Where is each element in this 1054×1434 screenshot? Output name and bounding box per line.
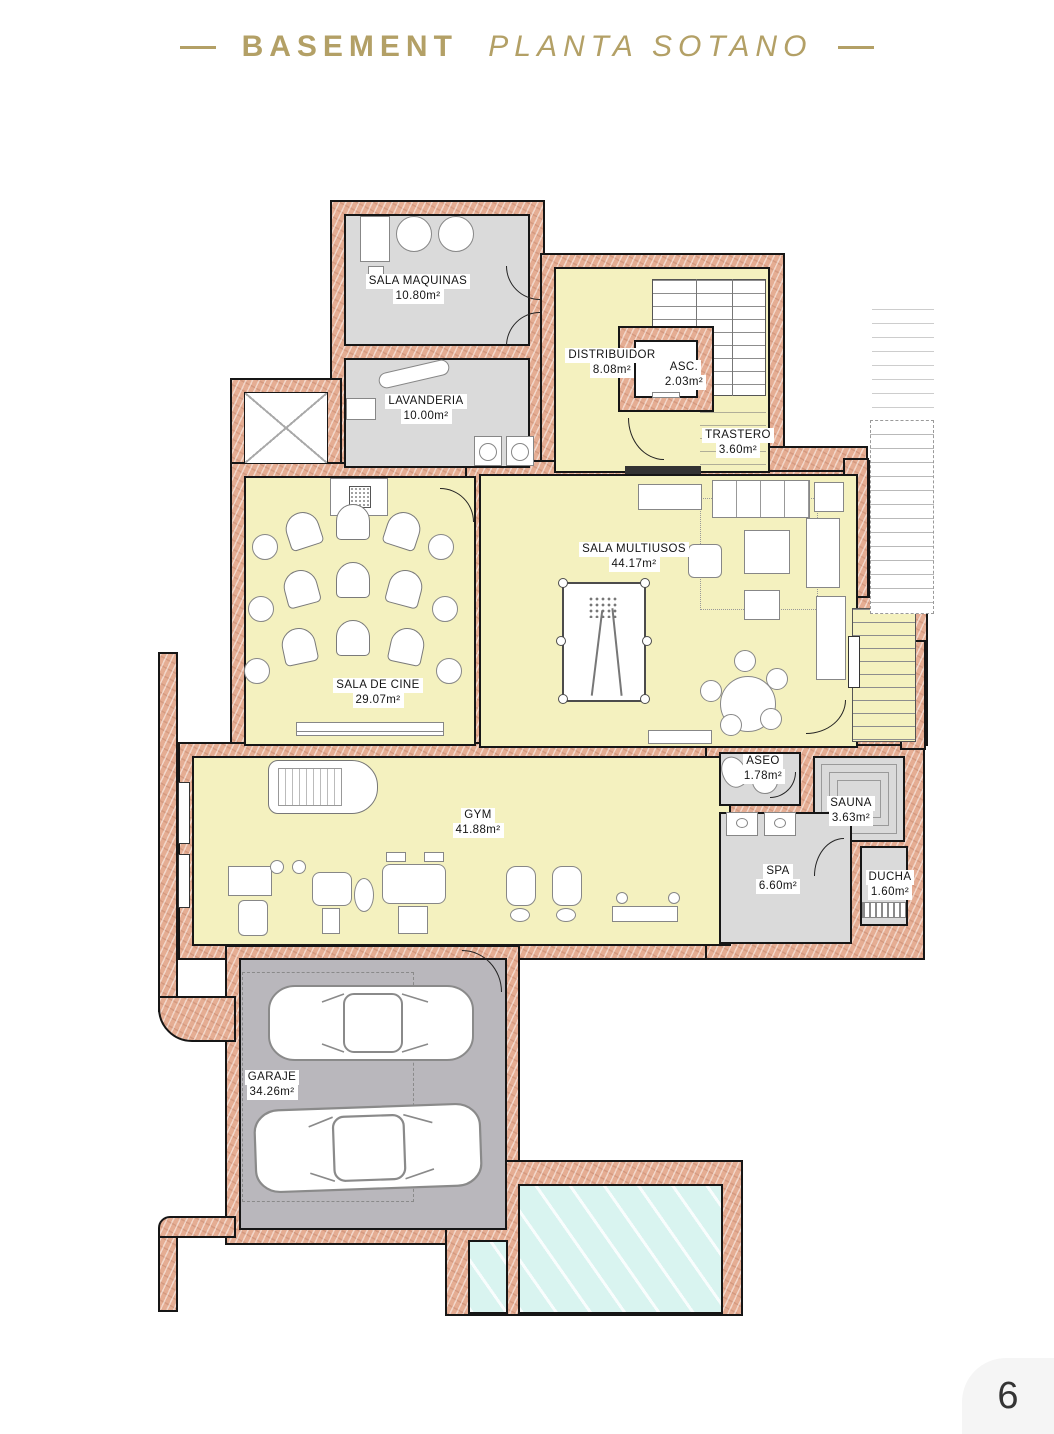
wall-segment	[158, 1216, 236, 1238]
machine-unit	[360, 216, 390, 262]
exterior-staircase-upper	[872, 296, 934, 418]
side-table	[428, 534, 454, 560]
gym-machine-weight	[292, 860, 306, 874]
sideboard	[638, 484, 702, 510]
label-sala-multiusos: SALA MULTIUSOS44.17m²	[564, 542, 704, 572]
coffee-table	[744, 530, 790, 574]
pool-table-pocket	[642, 636, 652, 646]
tall-cabinet	[816, 596, 846, 680]
retaining-wall-curve	[158, 996, 236, 1042]
exercise-bike	[506, 866, 536, 906]
gym-punching-bag	[354, 878, 374, 912]
label-lavanderia: LAVANDERIA10.00m²	[356, 394, 496, 424]
dining-chair	[700, 680, 722, 702]
side-table	[248, 596, 274, 622]
window	[848, 636, 860, 688]
stair-divider	[732, 279, 733, 396]
pool-strip	[468, 1240, 508, 1314]
label-ducha: DUCHA1.60m²	[820, 870, 960, 900]
cinema-seat	[336, 562, 370, 598]
side-table	[252, 534, 278, 560]
side-table	[432, 596, 458, 622]
car-top-view	[250, 1096, 485, 1200]
label-sauna: SAUNA3.63m²	[781, 796, 921, 826]
label-ascensor: ASC.2.03m²	[636, 360, 732, 390]
exercise-bike	[552, 866, 582, 906]
car-top-view	[266, 980, 476, 1066]
gym-dumbbell	[668, 892, 680, 904]
pool-table-pocket	[640, 578, 650, 588]
washing-machine-drum	[511, 443, 529, 461]
gym-machine	[228, 866, 272, 896]
dining-chair	[760, 708, 782, 730]
water-tank	[396, 216, 432, 252]
pool-table-pocket	[558, 694, 568, 704]
window	[178, 782, 190, 844]
elevator-door	[652, 392, 680, 398]
gym-handle	[386, 852, 406, 862]
pool-table-pocket	[558, 578, 568, 588]
bench	[648, 730, 712, 744]
wall-segment	[158, 1236, 178, 1312]
pool-table-pocket	[556, 636, 566, 646]
label-sala-maquinas: SALA MAQUINAS10.80m²	[348, 274, 488, 304]
wall-shelf	[625, 466, 701, 474]
retaining-wall	[158, 652, 178, 1012]
spa-sink-bowl	[736, 818, 748, 828]
sofa	[806, 518, 840, 588]
dining-chair	[720, 714, 742, 736]
dining-chair	[766, 668, 788, 690]
window	[178, 854, 190, 908]
shower-drain	[862, 902, 906, 918]
gym-handle	[424, 852, 444, 862]
brochure-page: BASEMENT PLANTA SOTANO	[0, 0, 1054, 1434]
cinema-seat	[336, 620, 370, 656]
gym-machine	[238, 900, 268, 936]
pouf	[744, 590, 780, 620]
washing-machine-drum	[479, 443, 497, 461]
label-sala-de-cine: SALA DE CINE29.07m²	[308, 678, 448, 708]
gym-bench-press	[312, 872, 352, 906]
label-garaje: GARAJE34.26m²	[202, 1070, 342, 1100]
floor-plan: SALA MAQUINAS10.80m² LAVANDERIA10.00m² D…	[0, 0, 1054, 1434]
page-number-badge: 6	[962, 1358, 1054, 1434]
exercise-bike-seat	[510, 908, 530, 922]
gym-multistation	[398, 906, 428, 934]
gym-bench	[612, 906, 678, 922]
cinema-screen	[296, 722, 444, 736]
exterior-staircase-dashed	[870, 420, 934, 614]
gym-bench-press	[322, 908, 340, 934]
side-table	[244, 658, 270, 684]
patio-lightwell	[244, 392, 328, 464]
page-number: 6	[997, 1375, 1018, 1418]
label-gym: GYM41.88m²	[408, 808, 548, 838]
exercise-bike-seat	[556, 908, 576, 922]
dining-chair	[734, 650, 756, 672]
sofa	[712, 480, 810, 518]
cinema-seat	[336, 504, 370, 540]
label-trastero: TRASTERO3.60m²	[668, 428, 808, 458]
label-aseo: ASEO1.78m²	[693, 754, 833, 784]
gym-machine-weight	[270, 860, 284, 874]
exterior-staircase-lower	[852, 608, 916, 742]
gym-dumbbell	[616, 892, 628, 904]
side-table	[814, 482, 844, 512]
pool-table-pocket	[640, 694, 650, 704]
water-tank	[438, 216, 474, 252]
swimming-pool	[518, 1184, 723, 1314]
treadmill-belt	[278, 768, 342, 806]
gym-multistation	[382, 864, 446, 904]
